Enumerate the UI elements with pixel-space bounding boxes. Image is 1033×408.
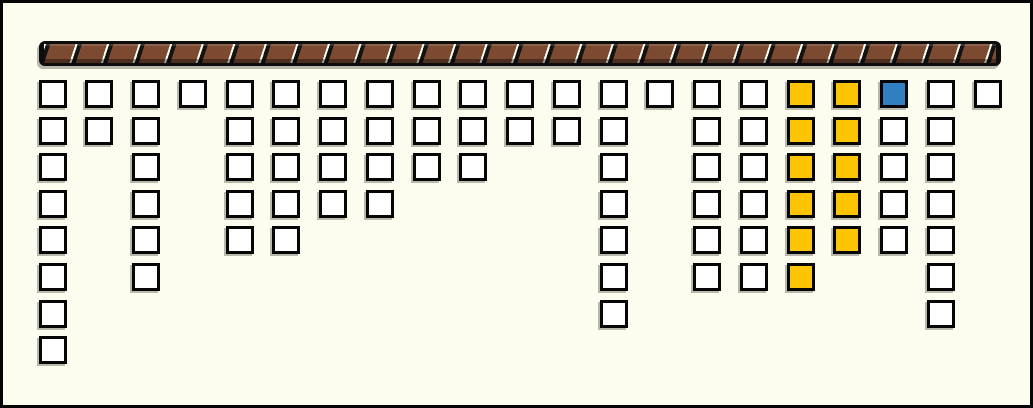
- tile[interactable]: [740, 153, 768, 181]
- tile[interactable]: [927, 80, 955, 108]
- tile[interactable]: [413, 117, 441, 145]
- tile[interactable]: [740, 80, 768, 108]
- tile[interactable]: [506, 117, 534, 145]
- tile[interactable]: [226, 153, 254, 181]
- tile[interactable]: [693, 226, 721, 254]
- tile[interactable]: [39, 190, 67, 218]
- tile[interactable]: [787, 153, 815, 181]
- tile[interactable]: [226, 190, 254, 218]
- tile[interactable]: [600, 117, 628, 145]
- tile[interactable]: [39, 80, 67, 108]
- tile[interactable]: [927, 263, 955, 291]
- tile[interactable]: [226, 80, 254, 108]
- tile[interactable]: [272, 117, 300, 145]
- tile[interactable]: [787, 190, 815, 218]
- tile[interactable]: [553, 117, 581, 145]
- tile[interactable]: [740, 117, 768, 145]
- tile[interactable]: [132, 190, 160, 218]
- tile[interactable]: [880, 226, 908, 254]
- tile[interactable]: [553, 80, 581, 108]
- tile[interactable]: [39, 117, 67, 145]
- tile[interactable]: [319, 117, 347, 145]
- tile[interactable]: [366, 80, 394, 108]
- tile[interactable]: [880, 80, 908, 108]
- tile[interactable]: [226, 117, 254, 145]
- tile[interactable]: [693, 80, 721, 108]
- tile[interactable]: [974, 80, 1002, 108]
- tile[interactable]: [459, 117, 487, 145]
- tile[interactable]: [600, 300, 628, 328]
- tile[interactable]: [39, 263, 67, 291]
- tile[interactable]: [39, 226, 67, 254]
- tile[interactable]: [366, 153, 394, 181]
- tile[interactable]: [833, 153, 861, 181]
- tile[interactable]: [787, 226, 815, 254]
- tile[interactable]: [693, 153, 721, 181]
- tile[interactable]: [319, 80, 347, 108]
- tile[interactable]: [600, 226, 628, 254]
- tile[interactable]: [179, 80, 207, 108]
- board-window: [0, 0, 1033, 408]
- tile[interactable]: [740, 263, 768, 291]
- tile[interactable]: [319, 190, 347, 218]
- tile[interactable]: [132, 263, 160, 291]
- tile[interactable]: [693, 190, 721, 218]
- tile[interactable]: [600, 263, 628, 291]
- tile[interactable]: [927, 190, 955, 218]
- tile[interactable]: [740, 190, 768, 218]
- tile[interactable]: [833, 80, 861, 108]
- tile[interactable]: [413, 153, 441, 181]
- tile[interactable]: [272, 153, 300, 181]
- tile[interactable]: [132, 226, 160, 254]
- tile[interactable]: [880, 153, 908, 181]
- tile[interactable]: [600, 190, 628, 218]
- tile[interactable]: [39, 336, 67, 364]
- tile[interactable]: [693, 263, 721, 291]
- tile[interactable]: [366, 117, 394, 145]
- tile[interactable]: [459, 80, 487, 108]
- tile[interactable]: [833, 226, 861, 254]
- tile[interactable]: [132, 117, 160, 145]
- tile[interactable]: [740, 226, 768, 254]
- tile[interactable]: [85, 80, 113, 108]
- tile[interactable]: [927, 153, 955, 181]
- tile[interactable]: [39, 153, 67, 181]
- tile[interactable]: [132, 80, 160, 108]
- tile[interactable]: [787, 263, 815, 291]
- tile[interactable]: [319, 153, 347, 181]
- tile[interactable]: [880, 117, 908, 145]
- tile[interactable]: [366, 190, 394, 218]
- tile-board: [3, 3, 1030, 405]
- tile[interactable]: [459, 153, 487, 181]
- tile[interactable]: [272, 80, 300, 108]
- tile[interactable]: [787, 117, 815, 145]
- tile[interactable]: [272, 226, 300, 254]
- tile[interactable]: [693, 117, 721, 145]
- tile[interactable]: [132, 153, 160, 181]
- tile[interactable]: [787, 80, 815, 108]
- tile[interactable]: [833, 190, 861, 218]
- tile[interactable]: [39, 300, 67, 328]
- tile[interactable]: [272, 190, 300, 218]
- tile[interactable]: [226, 226, 254, 254]
- tile[interactable]: [646, 80, 674, 108]
- tile[interactable]: [927, 117, 955, 145]
- tile[interactable]: [506, 80, 534, 108]
- tile[interactable]: [413, 80, 441, 108]
- tile[interactable]: [600, 153, 628, 181]
- tile[interactable]: [833, 117, 861, 145]
- tile[interactable]: [927, 226, 955, 254]
- tile[interactable]: [85, 117, 113, 145]
- tile[interactable]: [880, 190, 908, 218]
- tile[interactable]: [600, 80, 628, 108]
- tile[interactable]: [927, 300, 955, 328]
